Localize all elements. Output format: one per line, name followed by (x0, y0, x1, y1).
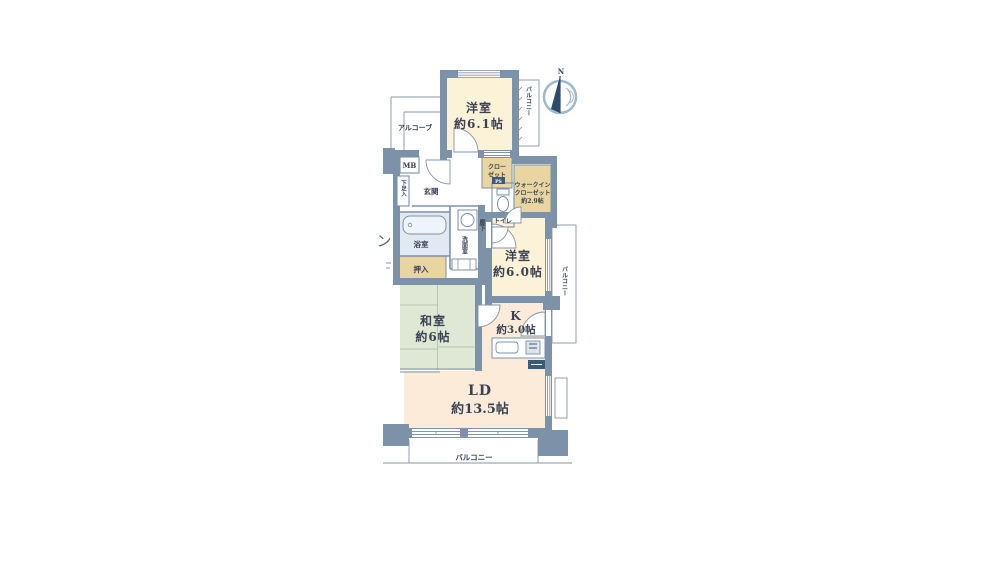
label-balcony-bottom: バルコニー (455, 453, 492, 462)
label-cutoff-text: ン (376, 232, 391, 250)
label-wic-line2: クローゼット (514, 189, 550, 197)
label-kitchen-name: K (510, 309, 521, 323)
label-hallway: 廊下 (478, 218, 485, 232)
bathtub-icon (403, 216, 446, 234)
label-balcony-top: バルコニー (525, 86, 532, 116)
toilet-icon (497, 189, 509, 212)
label-mb: MB (403, 161, 417, 170)
label-balcony-right: バルコニー (561, 266, 568, 296)
label-yoshitsu61-name: 洋室 (466, 100, 492, 115)
label-compass-n: N (558, 67, 565, 76)
door-entrance (426, 160, 450, 184)
label-oshiire: 押入 (414, 264, 429, 274)
label-ps: PS (495, 179, 502, 185)
label-washitsu-name: 和室 (419, 313, 446, 328)
floorplan-page: 洋室 約6.1帖 バルコニー アルコーブ MB クロー ゼット ウォークイン ク… (0, 0, 1000, 563)
label-wic-line1: ウォークイン (514, 181, 550, 189)
label-kitchen-size: 約3.0帖 (496, 323, 536, 336)
label-alcove: アルコーブ (398, 123, 432, 132)
label-yoshitsu60-size: 約6.0帖 (493, 264, 543, 279)
label-washitsu-size: 約6帖 (415, 329, 450, 344)
label-yoshitsu61-size: 約6.1帖 (454, 116, 504, 131)
label-washroom: 洗面室 (461, 235, 468, 255)
vanity-icon (452, 259, 476, 270)
label-yoshitsu60-name: 洋室 (505, 248, 531, 263)
label-closet-line2: ゼット (488, 171, 506, 179)
label-wic-line3: 約2.9帖 (521, 197, 543, 205)
label-ld-name: LD (468, 383, 492, 399)
label-toilet: トイレ (494, 218, 512, 225)
label-closet-line1: クロー (488, 163, 506, 171)
label-bath: 浴室 (414, 239, 429, 249)
floorplan-canvas: 洋室 約6.1帖 バルコニー アルコーブ MB クロー ゼット ウォークイン ク… (0, 0, 1000, 563)
compass-icon (544, 76, 576, 113)
label-ld-size: 約13.5帖 (451, 401, 509, 417)
label-genkan: 玄関 (424, 186, 439, 196)
side-window-bay (555, 378, 567, 418)
